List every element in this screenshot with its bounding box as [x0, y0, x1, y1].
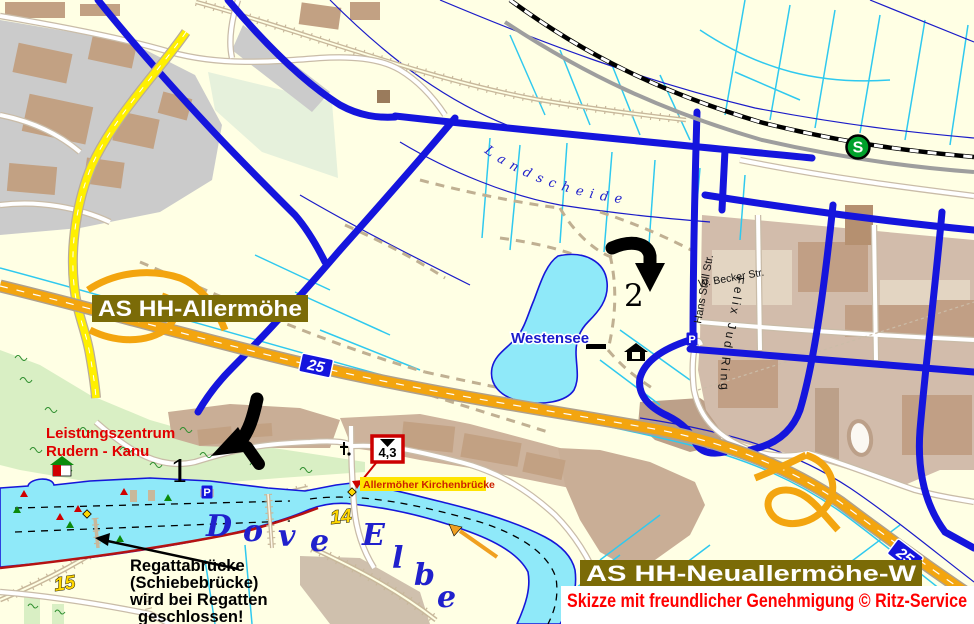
svg-text:AS HH-Allermöhe: AS HH-Allermöhe	[98, 296, 302, 321]
svg-text:AS HH-Neuallermöhe-W: AS HH-Neuallermöhe-W	[586, 561, 916, 586]
svg-text:P: P	[203, 487, 210, 499]
credit-banner: Skizze mit freundlicher Genehmigung © Ri…	[561, 586, 974, 624]
map-canvas: S P P 25 25 4,3	[0, 0, 974, 624]
junction-plate-west: AS HH-Allermöhe	[92, 295, 308, 322]
sbahn-station-icon: S	[847, 136, 870, 159]
km-marker-14: 14	[329, 506, 353, 529]
km-marker-15: 15	[53, 572, 77, 596]
svg-text:Rudern - Kanu: Rudern - Kanu	[46, 443, 149, 460]
sbahn-letter: S	[853, 140, 864, 157]
bridge-label: Allermöher Kirchenbrücke	[360, 477, 495, 491]
lake-label: Westensee	[511, 330, 589, 347]
svg-text:Allermöher Kirchenbrücke: Allermöher Kirchenbrücke	[363, 479, 495, 491]
junction-plate-east: AS HH-Neuallermöhe-W	[580, 560, 922, 586]
svg-text:4,3: 4,3	[378, 445, 396, 460]
svg-text:geschlossen!: geschlossen!	[138, 608, 243, 624]
svg-text:(Schiebebrücke): (Schiebebrücke)	[130, 574, 258, 592]
svg-text:Regattabrücke: Regattabrücke	[130, 557, 245, 575]
route-number-2: 2	[624, 278, 644, 314]
credit-text: Skizze mit freundlicher Genehmigung © Ri…	[567, 591, 967, 612]
route-number-1: 1	[170, 454, 190, 490]
parking-icon: P	[202, 486, 213, 500]
svg-text:wird bei Regatten: wird bei Regatten	[129, 591, 268, 609]
svg-text:P: P	[688, 334, 695, 346]
parking-icon: P	[687, 333, 698, 347]
svg-text:Leistungszentrum: Leistungszentrum	[46, 425, 175, 442]
